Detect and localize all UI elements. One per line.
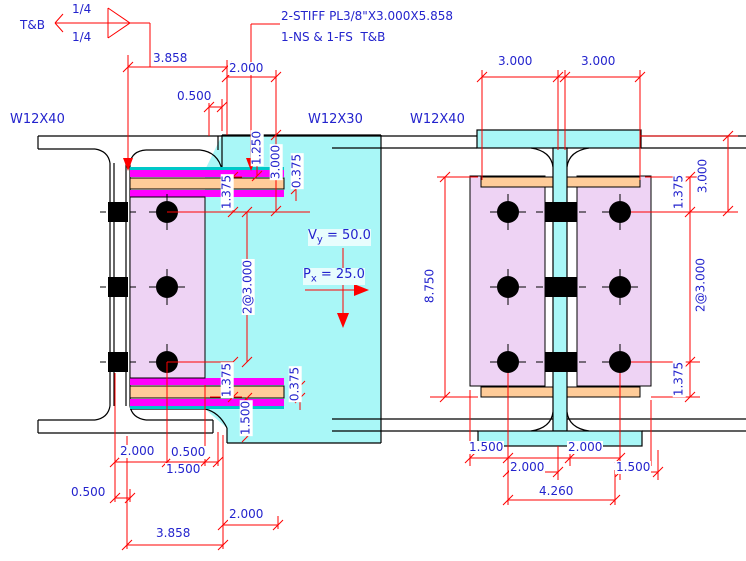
axial-value: = 25.0 — [317, 267, 365, 282]
dim-3858-top: 3.858 — [152, 52, 188, 65]
axial-load-label: Px = 25.0 — [303, 268, 365, 285]
weld-size-top: 1/4 — [72, 3, 91, 16]
dim-1500-bl: 1.500 — [165, 463, 201, 476]
dim-3000-vert-left: 3.000 — [270, 144, 283, 180]
shear-load-label: Vy = 50.0 — [308, 229, 371, 246]
dim-spacing-left: 2@3.000 — [242, 259, 255, 315]
dim-0500-bl-b: 0.500 — [70, 486, 106, 499]
stiffener-note-line2: 1-NS & 1-FS T&B — [281, 31, 385, 44]
dim-2000-br-b: 2.000 — [509, 461, 545, 474]
axial-symbol: P — [303, 267, 311, 282]
shear-symbol: V — [308, 228, 317, 243]
dim-0500-top: 0.500 — [176, 90, 212, 103]
dim-1500-br-b: 1.500 — [615, 461, 651, 474]
dim-2000-bl: 2.000 — [119, 445, 155, 458]
dim-3000-right-a: 3.000 — [497, 55, 533, 68]
dim-3000-vert-right: 3.000 — [697, 158, 710, 194]
dim-1375-left-bot: 1.375 — [221, 362, 234, 398]
dim-3858-bottom: 3.858 — [155, 527, 191, 540]
dim-spacing-right: 2@3.000 — [695, 257, 708, 313]
dim-1500-vert: 1.500 — [240, 400, 253, 436]
weld-size-bottom: 1/4 — [72, 31, 91, 44]
drawing-canvas — [0, 0, 746, 561]
dim-0500-bl-a: 0.500 — [170, 446, 206, 459]
stiffener-note-line1: 2-STIFF PL3/8"X3.000X5.858 — [281, 10, 453, 23]
dim-1500-br-a: 1.500 — [468, 441, 504, 454]
dim-1250-vert: 1.250 — [251, 130, 264, 166]
beam-label-middle: W12X30 — [308, 113, 363, 127]
dim-8750: 8.750 — [424, 268, 437, 304]
dim-1375-right-bot: 1.375 — [673, 361, 686, 397]
beam-label-left: W12X40 — [10, 113, 65, 127]
beam-label-right: W12X40 — [410, 113, 465, 127]
dim-2000-bl-b: 2.000 — [228, 508, 264, 521]
dim-1375-right-top: 1.375 — [673, 174, 686, 210]
dim-4260: 4.260 — [538, 485, 574, 498]
shear-value: = 50.0 — [323, 228, 371, 243]
dim-0375-top: 0.375 — [291, 153, 304, 189]
dim-1375-left-top: 1.375 — [221, 174, 234, 210]
dim-0375-bottom: 0.375 — [289, 366, 302, 402]
cad-drawing-viewport: W12X40 W12X30 W12X40 T&B 1/4 1/4 2-STIFF… — [0, 0, 746, 561]
dim-2000-top: 2.000 — [228, 62, 264, 75]
weld-location-note: T&B — [20, 19, 45, 32]
dim-3000-right-b: 3.000 — [580, 55, 616, 68]
dim-2000-br-a: 2.000 — [567, 441, 603, 454]
